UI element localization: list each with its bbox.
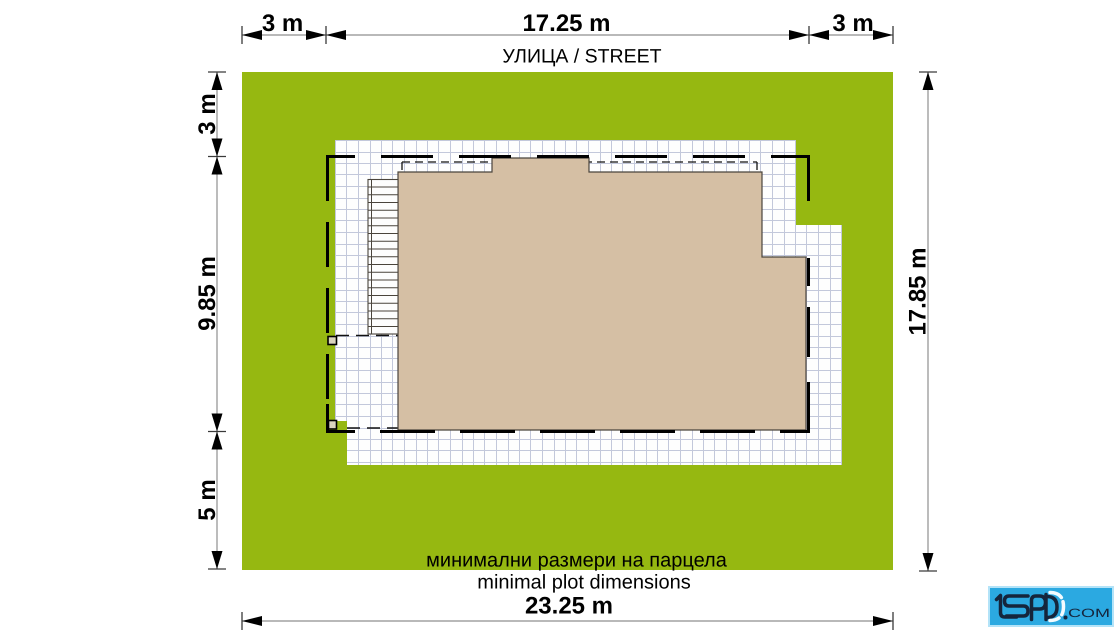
svg-text:3 m: 3 m [832, 10, 873, 37]
svg-text:17.85 m: 17.85 m [905, 247, 932, 335]
svg-text:COM: COM [1068, 606, 1110, 620]
svg-text:9.85 m: 9.85 m [194, 256, 221, 331]
svg-text:минимални размери на парцела: минимални размери на парцела [426, 550, 728, 572]
svg-text:3 m: 3 m [194, 93, 221, 134]
svg-text:5 m: 5 m [194, 479, 221, 520]
svg-text:3 m: 3 m [262, 10, 303, 37]
svg-text:minimal plot dimensions: minimal plot dimensions [477, 572, 690, 594]
svg-text:23.25 m: 23.25 m [525, 593, 613, 620]
svg-text:17.25 m: 17.25 m [522, 10, 610, 37]
svg-text:УЛИЦА / STREET: УЛИЦА / STREET [502, 46, 661, 68]
